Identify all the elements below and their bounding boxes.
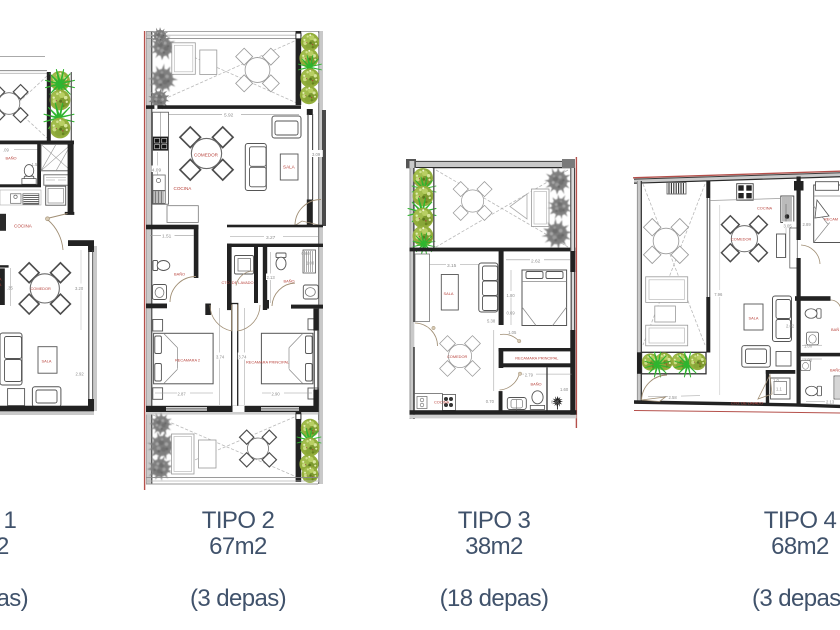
svg-text:2.62: 2.62 [786, 324, 795, 329]
svg-text:2.87: 2.87 [178, 392, 187, 397]
svg-text:1.80: 1.80 [507, 293, 516, 298]
svg-text:1.1: 1.1 [776, 387, 782, 392]
svg-text:7.96: 7.96 [714, 292, 723, 297]
svg-text:3.20: 3.20 [75, 286, 84, 291]
svg-text:2.90: 2.90 [272, 392, 281, 397]
svg-text:COCINA: COCINA [434, 400, 450, 405]
svg-text:0.69: 0.69 [507, 311, 516, 316]
svg-text:1.60: 1.60 [560, 387, 569, 392]
svg-text:COMEDOR: COMEDOR [447, 354, 468, 359]
svg-text:CTO. DE LAVADO: CTO. DE LAVADO [731, 401, 763, 406]
svg-text:2.79: 2.79 [525, 372, 534, 377]
svg-text:2.92: 2.92 [76, 372, 85, 377]
svg-text:.09: .09 [3, 147, 9, 152]
svg-text:RECAMARA PRINCIPAL: RECAMARA PRINCIPAL [246, 360, 290, 365]
svg-text:3.09: 3.09 [312, 152, 321, 157]
svg-text:.35: .35 [7, 286, 13, 291]
svg-text:3.15: 3.15 [447, 263, 457, 269]
svg-text:5.92: 5.92 [224, 113, 234, 119]
svg-text:BAÑO: BAÑO [6, 155, 17, 160]
svg-text:2.58: 2.58 [669, 395, 678, 400]
svg-text:1.05: 1.05 [508, 330, 517, 335]
svg-text:2.13: 2.13 [826, 400, 835, 405]
svg-text:COCINA: COCINA [14, 223, 33, 228]
svg-text:SALA: SALA [749, 316, 759, 321]
svg-text:1.51: 1.51 [162, 234, 172, 240]
svg-text:3.74: 3.74 [216, 355, 225, 360]
svg-text:3.27: 3.27 [266, 235, 276, 241]
svg-text:COCINA: COCINA [174, 186, 193, 191]
svg-text:COCINA: COCINA [757, 206, 773, 211]
svg-text:2.89: 2.89 [803, 222, 812, 227]
svg-text:COMEDOR: COMEDOR [731, 236, 752, 241]
svg-text:RECAMARA 2: RECAMARA 2 [175, 358, 200, 363]
svg-text:BAÑO: BAÑO [830, 368, 840, 373]
svg-text:2.13: 2.13 [267, 275, 276, 280]
svg-text:SALA: SALA [444, 291, 454, 296]
svg-text:0.60: 0.60 [302, 251, 311, 256]
svg-text:SALA: SALA [42, 359, 52, 364]
svg-text:1.00: 1.00 [306, 261, 315, 266]
svg-text:1.0: 1.0 [773, 378, 779, 383]
svg-text:1.00: 1.00 [804, 344, 813, 349]
svg-text:0.45: 0.45 [551, 400, 560, 405]
svg-text:BAÑ: BAÑ [831, 327, 839, 332]
svg-text:2.62: 2.62 [531, 258, 541, 264]
svg-text:0.70: 0.70 [486, 399, 495, 404]
svg-text:BAÑO: BAÑO [531, 381, 542, 386]
svg-text:RECAMARA PRINCIPAL: RECAMARA PRINCIPAL [515, 355, 559, 360]
svg-text:4.09: 4.09 [152, 167, 162, 173]
svg-text:5.38: 5.38 [487, 319, 496, 324]
svg-text:COMEDOR: COMEDOR [31, 286, 52, 291]
svg-text:RECAM: RECAM [824, 217, 838, 222]
svg-text:SALA: SALA [283, 165, 296, 170]
svg-text:COMEDOR: COMEDOR [194, 153, 219, 158]
svg-text:3.05: 3.05 [784, 223, 793, 228]
svg-text:BAÑO: BAÑO [174, 272, 185, 277]
